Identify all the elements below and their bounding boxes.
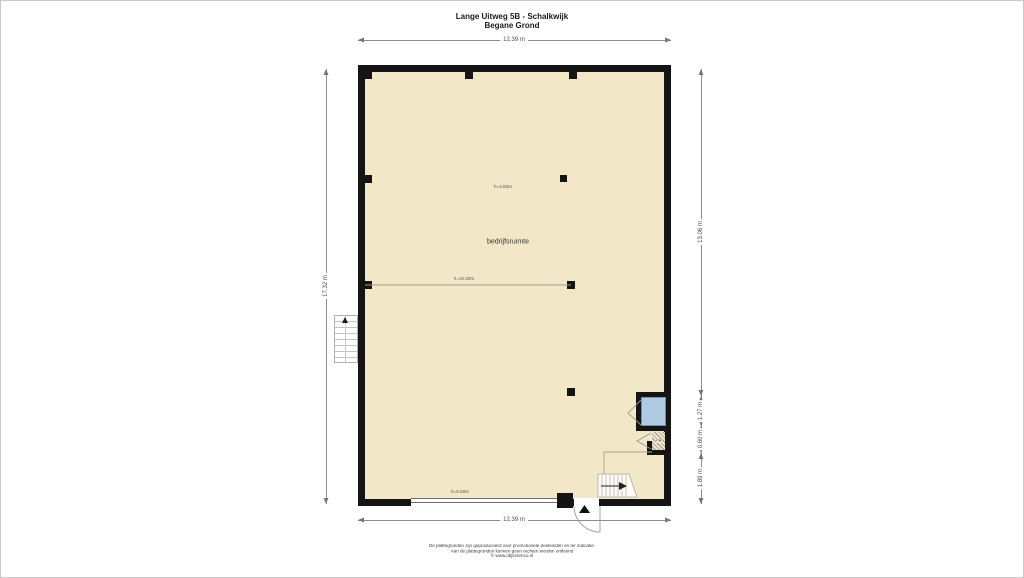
- footer-line-3: © www.objectenco.nl: [124, 554, 901, 559]
- dimension-label-top: 12.39 m: [500, 37, 528, 43]
- page-subtitle: Begane Grond: [1, 21, 1023, 30]
- meter-closet-wall-stub: [647, 441, 652, 455]
- meter-closet-label: mk: [656, 439, 663, 443]
- height-label-bottom: h=6.00m: [451, 490, 469, 495]
- plan-title-block: Lange Uitweg 5B - Schalkwijk Begane Gron…: [1, 12, 1023, 30]
- page-title: Lange Uitweg 5B - Schalkwijk: [1, 12, 1023, 21]
- height-label-upper: h=3.85m: [494, 185, 512, 190]
- dimension-label-bottom: 12.39 m: [500, 517, 528, 523]
- dimension-label-right-2: 1.27 m: [698, 400, 704, 422]
- dimension-label-left: 17.32 m: [323, 273, 329, 299]
- entrance-door-arc: [574, 506, 600, 532]
- stairs-direction-arrow-icon: [342, 317, 348, 323]
- dimension-label-right-4: 1.89 m: [698, 467, 704, 489]
- floor-area: [365, 72, 664, 499]
- footer-disclaimer: De plattegronden zijn geproduceerd voor …: [124, 544, 901, 559]
- dimension-label-right-3: 0.60 m: [698, 428, 704, 450]
- height-label-middle: h=10.00m: [454, 277, 474, 282]
- entrance-arrow-icon: [579, 505, 590, 513]
- garage-door-opening: [411, 498, 557, 506]
- toilet-window: [641, 397, 666, 426]
- column-marker: [557, 493, 573, 508]
- dimension-label-right-1: 13.06 m: [698, 219, 704, 245]
- entrance-door-opening: [574, 498, 599, 506]
- room-label: bedrijfsruimte: [487, 239, 529, 246]
- floor-plan-canvas: Lange Uitweg 5B - Schalkwijk Begane Gron…: [0, 0, 1024, 578]
